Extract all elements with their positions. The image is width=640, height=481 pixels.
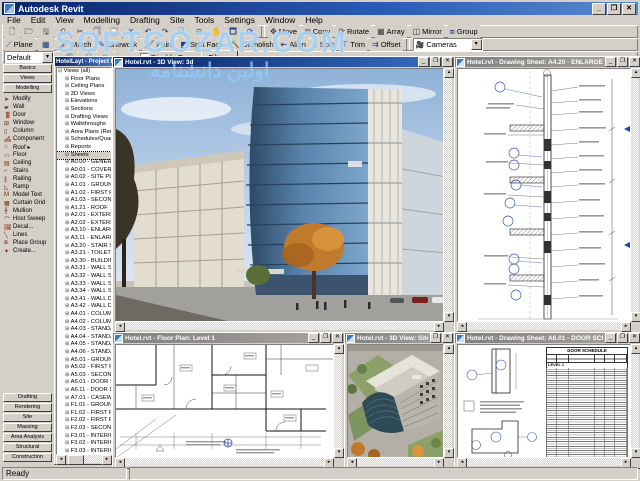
designbar-tab[interactable]: Structural [3,443,52,452]
tree-node-sheet[interactable]: A3.21 - TOILET PLA [57,250,111,258]
status-bar: Ready [2,467,638,480]
label: Array [387,27,405,36]
rotate-button[interactable]: ⟳Rotate [336,25,371,38]
app-icon [4,3,15,14]
tree-node[interactable]: Sections [57,106,111,114]
project-browser-title: HotelLayt - Project b... [56,59,113,65]
scroll-up-icon[interactable]: ▴ [444,68,454,78]
column-icon: ▯ [4,128,11,135]
window-titlebar[interactable]: Hotel.rvt - 3D View: Site ❐✕ [345,333,454,343]
spin-icon[interactable]: ⟳ [242,25,258,38]
maximize-icon[interactable]: ❐ [320,333,331,343]
component-icon: 🛋 [4,136,11,143]
plan-canvas[interactable] [115,344,334,458]
tree-node-sheet[interactable]: A0.02 - SITE PLAN [57,174,111,182]
scroll-track[interactable] [467,458,621,466]
scroll-track[interactable] [631,354,639,448]
menu-item[interactable]: Settings [219,15,260,25]
lines-icon: ╲ [4,232,11,239]
scroll-thumb[interactable] [68,455,84,465]
close-icon[interactable]: ✕ [332,333,343,343]
label: Rotate [347,27,369,36]
tree-node-sheet[interactable]: A0.01 - COVER SH [57,167,111,175]
label: Mirror [422,27,442,36]
mirror-icon: ◫ [413,27,421,36]
tree-node-sheet[interactable]: A4.01 - COLUMN A [57,311,111,319]
modeltext-tool[interactable]: MModel Text [2,191,53,199]
tree-node-sheet[interactable]: A3.10 - ENLARGE [57,227,111,235]
mirror-button[interactable]: ◫Mirror [411,25,444,38]
window-title: Hotel.rvt - Drawing Sheet: A4.20 - ENLAR… [467,59,603,66]
designbar-tabs-top: BasicsViewsModelling [2,64,53,93]
scroll-down-icon[interactable]: ▾ [444,312,454,322]
status-text: Ready [2,467,127,480]
scroll-track[interactable] [84,455,102,463]
save-icon-icon: 🖫 [43,27,50,36]
chevron-down-icon[interactable]: ▾ [42,52,53,63]
tree-node-sheet[interactable]: A3.33 - WALL SEC [57,281,111,289]
schedule-title: DOOR SCHEDULE [546,347,628,354]
linework-icon: ✎ [98,40,105,49]
scroll-track[interactable] [444,354,452,448]
tree-node-sheet[interactable]: A6.11 - DOOR DET [57,387,111,395]
tree-node-sheet[interactable]: A2.01 - EXTERIOR [57,212,111,220]
tree-view-categories: Floor PlansCeiling Plans3D ViewsElevatio… [57,76,111,137]
trim-button[interactable]: ⊤Trim [339,38,367,51]
schedule-header-cell [615,355,627,362]
close-icon[interactable]: ✕ [442,333,453,343]
standard-toolbar-icons: 🗋🗁🖫⎙✂🗍📋✕↶↷🔍⊖✋🗖⟳ [4,25,258,38]
curtaingrid-icon: ▦ [4,200,11,207]
tree-node-sheet[interactable]: F3.03 - INTERIOR [57,448,111,455]
plane-button[interactable]: ⟋Plane [4,38,35,51]
horizontal-scrollbar[interactable]: ◂ ▸ [115,458,334,466]
tree-node[interactable]: Elevations [57,98,111,106]
window-titlebar[interactable]: Hotel.rvt - Floor Plan: Level 1 _❐✕ [113,333,344,343]
tree-node-sheet[interactable]: A7.01 - CASEWOR [57,395,111,403]
scroll-track[interactable] [334,354,342,448]
minimize-icon[interactable]: _ [308,333,319,343]
paint-icon: 🖌 [144,40,154,49]
designbar-tab[interactable]: Modelling [3,84,52,93]
grid-button[interactable]: ▦ [38,38,54,51]
new-icon[interactable]: 🗋 [4,25,20,38]
schedule-header-cell [605,355,615,362]
toolbar-separator [261,26,265,37]
save-icon[interactable]: 🖫 [38,25,54,38]
scroll-track[interactable] [467,322,621,330]
horizontal-scrollbar[interactable]: ◂ ▸ [457,322,631,330]
paste-icon-icon: 📋 [109,27,119,36]
tree-node-schedules[interactable]: Schedules/Quantiti [57,136,111,144]
sheet-canvas[interactable]: DOOR SCHEDULE LEVEL 1 LEVEL 2 [457,344,631,458]
designbar-tabs-bottom: DraftingRenderingSiteMassingArea Analysi… [2,393,53,463]
minimize-icon[interactable]: _ [592,3,606,15]
vertical-scrollbar[interactable]: ▴ ▾ [444,68,452,322]
app-titlebar[interactable]: Autodesk Revit _ ❐ ✕ [2,2,638,15]
maximize-icon[interactable]: ❐ [617,57,628,67]
floor-plan-drawing [116,345,334,458]
designbar-tab[interactable]: Rendering [3,403,52,412]
label: Door [13,112,26,118]
label: Mullion [13,208,32,214]
minimize-icon[interactable]: _ [605,333,616,343]
tree-node-sheet[interactable]: F3.01 - INTERIOR [57,433,111,441]
vertical-scrollbar[interactable]: ▴ ▾ [631,68,639,322]
match-icon: 🖌 [59,40,69,49]
zoom-out-icon-icon: ⊖ [196,27,203,36]
plane-icon: ⟋ [6,40,12,49]
label: Host Sweep [13,216,45,222]
tree-node-sheet[interactable]: A4.05 - STANDARD [57,341,111,349]
scroll-left-icon[interactable]: ◂ [56,455,66,465]
tree-node[interactable]: 3D Views [57,91,111,99]
tree-node-sheet[interactable]: A3.20 - STAIR SEC [57,243,111,251]
scroll-right-icon[interactable]: ▸ [434,322,444,332]
floor-tool[interactable]: ▭Floor [2,151,53,159]
vertical-scrollbar[interactable]: ▴ ▾ [631,344,639,458]
menu-item[interactable]: Drafting [125,15,165,25]
minimize-icon[interactable]: _ [418,57,429,67]
ceiling-tool[interactable]: ▤Ceiling [2,159,53,167]
designbar-tab[interactable]: Area Analysis [3,433,52,442]
paste-icon[interactable]: 📋 [106,25,122,38]
scroll-up-icon[interactable]: ▴ [444,344,454,354]
group-button[interactable]: ⧈Group [448,25,480,38]
curtaingrid-tool[interactable]: ▦Curtain Grid [2,199,53,207]
rotate-icon: ⟳ [338,27,345,36]
label: Lines [13,232,27,238]
tree-node-sheet[interactable]: A3.41 - WALL DET [57,296,111,304]
menu-item[interactable]: View [50,15,78,25]
label: Group [457,27,478,36]
scroll-down-icon[interactable]: ▾ [334,448,344,458]
designbar-tab[interactable]: Drafting [3,393,52,402]
cut-icon[interactable]: ✂ [72,25,88,38]
window-3d-aerial: Hotel.rvt - 3D View: Site ❐✕ [344,332,455,469]
demolish-icon: 🔨 [230,40,240,49]
mullion-icon: ╫ [4,208,11,214]
3d-rendering [116,69,444,322]
ramp-icon: ◺ [4,184,11,191]
floor-icon: ▭ [4,152,11,159]
label: Stairs [13,168,28,174]
linework-button[interactable]: ✎Linework [96,38,139,51]
3d-view-canvas[interactable] [115,68,444,322]
label: Offset [381,40,401,49]
window-title: Hotel.rvt - Drawing Sheet: A6.01 - DOOR … [467,335,603,342]
splitface-icon: ◩ [180,40,188,49]
close-icon[interactable]: ✕ [629,57,640,67]
match-button[interactable]: 🖌Match [57,38,94,51]
split-icon: ⑃ [313,40,318,49]
menu-bar: FileEditViewModellingDraftingSiteToolsSe… [2,15,638,25]
align-button[interactable]: ⇤Align [279,38,308,51]
stairs-icon: ⌐ [4,168,11,174]
options-combo[interactable]: Default ▾ [4,51,54,64]
label: Demolish [242,40,273,49]
grid-icon: ▦ [42,40,50,49]
railing-icon: ∥ [4,176,11,183]
label: Wall [13,104,24,110]
label: Create... [13,248,36,254]
window-3d-view: Hotel.rvt - 3D View: 3d _❐✕ [112,56,455,333]
tree-node-views[interactable]: Views (all) [57,68,111,76]
copy-button[interactable]: ⧉Copy [303,25,332,38]
standard-toolbar-buttons: ✥Move⧉Copy⟳Rotate▦Array◫Mirror⧈Group [268,25,480,38]
tree-node-sheet[interactable]: A3.42 - WALL DET [57,303,111,311]
schedule-rows-level1 [546,368,628,459]
label: Copy [313,27,331,36]
horizontal-scrollbar[interactable]: ◂ ▸ [347,458,444,466]
open-icon-icon: 🗁 [24,27,34,36]
designbar-tab[interactable]: Massing [3,423,52,432]
tree-node-sheet[interactable]: F1.02 - FIRST FLO [57,410,111,418]
wall-tool[interactable]: ▰Wall [2,103,53,111]
tree-node[interactable]: Ceiling Plans [57,83,111,91]
sheet-icon [456,58,465,67]
scroll-up-icon[interactable]: ▴ [631,68,640,78]
undo-icon[interactable]: ↶ [140,25,156,38]
window-title: Hotel.rvt - 3D View: Site [357,335,428,342]
menu-item[interactable]: File [2,15,26,25]
tree-node[interactable]: Walkthroughs [57,121,111,129]
scroll-track[interactable] [357,458,434,466]
label: Split [320,40,335,49]
designbar-tools: ➤Modify▰Wall🚪Door⊞Window▯Column🛋Componen… [2,95,53,255]
scroll-track[interactable] [125,458,324,466]
tree-node-sheet[interactable]: F1.01 - GROUND F [57,402,111,410]
menu-item[interactable]: Site [165,15,190,25]
tree-node-sheets[interactable]: Sheets [57,152,111,160]
window-titlebar[interactable]: Hotel.rvt - Drawing Sheet: A4.20 - ENLAR… [455,57,640,67]
print-icon[interactable]: ⎙ [55,25,71,38]
label: Roof ▸ [13,144,30,151]
label: Ramp [13,184,29,190]
copy-clip-icon[interactable]: 🗍 [89,25,105,38]
scroll-up-icon[interactable]: ▴ [334,344,344,354]
menu-item[interactable]: Help [300,15,327,25]
tree-node[interactable]: Area Plans (Ren [57,129,111,137]
door-detail-drawings [458,345,544,458]
tree-node-reports[interactable]: Reports [57,144,111,152]
window-sheet-a601: Hotel.rvt - Drawing Sheet: A6.01 - DOOR … [454,332,640,469]
status-panel [129,467,638,480]
tree-node[interactable]: Drafting Views [57,114,111,122]
tree-node-sheet[interactable]: A4.04 - STANDARD [57,334,111,342]
label: Model Text [13,192,42,198]
maximize-icon[interactable]: ❐ [617,333,628,343]
designbar-tab[interactable]: Site [3,413,52,422]
cut-icon-icon: ✂ [77,27,84,36]
tree-node-sheet[interactable]: A1.03 - SECOND [57,197,111,205]
tree-node-sheet[interactable]: A0.00 - GENERAL [57,159,111,167]
roof-icon: ⌂ [4,144,11,150]
horizontal-scrollbar[interactable]: ◂ ▸ [457,458,631,466]
label: Curtain Grid [13,200,45,206]
tree-node-sheet[interactable]: A3.32 - WALL SEC [57,273,111,281]
scroll-right-icon[interactable]: ▸ [102,455,112,465]
window-titlebar[interactable]: Hotel.rvt - Drawing Sheet: A6.01 - DOOR … [455,333,640,343]
vertical-scrollbar[interactable]: ▴ ▾ [444,344,452,458]
revit-application-window: Autodesk Revit _ ❐ ✕ FileEditViewModelli… [0,0,640,481]
hostsweep-tool[interactable]: ⌒Host Sweep [2,215,53,223]
scroll-track[interactable] [444,78,452,312]
tree-node-sheet[interactable]: A3.34 - WALL SEC [57,288,111,296]
tree-node-sheet[interactable]: A6.01 - DOOR SCH [57,379,111,387]
camera-combo[interactable]: 🎥 Cameras ▾ [413,38,483,51]
window-title: Hotel.rvt - 3D View: 3d [125,59,194,66]
split-button[interactable]: ⑃Split [311,38,336,51]
chevron-down-icon[interactable]: ▾ [471,39,482,50]
tree-node[interactable]: Floor Plans [57,76,111,84]
pan-icon[interactable]: ✋ [208,25,224,38]
menu-item[interactable]: Modelling [79,15,125,25]
scroll-down-icon[interactable]: ▾ [631,312,640,322]
tree-node-sheet[interactable]: F2.03 - SECOND F [57,425,111,433]
standard-toolbar: 🗋🗁🖫⎙✂🗍📋✕↶↷🔍⊖✋🗖⟳ ✥Move⧉Copy⟳Rotate▦Array◫… [2,25,638,38]
tree-node-sheet[interactable]: A5.01 - GROUND F [57,357,111,365]
array-button[interactable]: ▦Array [375,25,406,38]
schedule-header-cell [547,355,557,362]
wall-section-drawing [458,69,631,322]
maximize-icon[interactable]: ❐ [607,3,621,15]
move-icon: ✥ [270,27,277,36]
zoom-in-icon[interactable]: 🔍 [174,25,190,38]
door-tool[interactable]: 🚪Door [2,111,53,119]
scroll-left-icon[interactable]: ◂ [457,322,467,332]
paint-button[interactable]: 🖌Paint [142,38,175,51]
tree-node-sheet[interactable]: A4.02 - COLUMNS [57,319,111,327]
sheet-canvas[interactable] [457,68,631,322]
window-floor-plan: Hotel.rvt - Floor Plan: Level 1 _❐✕ [112,332,345,469]
tree-node-sheet[interactable]: A1.01 - GROUND [57,182,111,190]
placegroup-tool[interactable]: ⧈Place Group [2,239,53,247]
label: Split Face [190,40,223,49]
scroll-track[interactable] [125,322,434,330]
trim-icon: ⊤ [341,40,348,49]
railing-tool[interactable]: ∥Railing [2,175,53,183]
ramp-tool[interactable]: ◺Ramp [2,183,53,191]
tree-node-sheet[interactable]: A5.03 - SECOND F [57,372,111,380]
menu-item[interactable]: Edit [26,15,51,25]
dynamic-view-icon[interactable]: 🗖 [225,25,241,38]
tree-node-sheet[interactable]: A3.11 - ENLARGE [57,235,111,243]
scroll-track[interactable] [631,78,639,312]
browser-horizontal-scrollbar[interactable]: ◂ ▸ [56,455,112,463]
minimize-icon[interactable]: _ [605,57,616,67]
door-icon: 🚪 [4,112,11,119]
label: Component [13,136,44,142]
toolbar-separator [406,39,410,50]
zoom-out-icon[interactable]: ⊖ [191,25,207,38]
scroll-down-icon[interactable]: ▾ [444,448,454,458]
decal-tool[interactable]: 🖼Decal... [2,223,53,231]
copy-clip-icon-icon: 🗍 [93,27,101,36]
designbar-tab[interactable]: Construction [3,453,52,462]
scroll-down-icon[interactable]: ▾ [631,448,640,458]
label: Place Group [13,240,46,246]
tree-node-sheet[interactable]: A4.03 - STANDARD [57,326,111,334]
window-title: Hotel.rvt - Floor Plan: Level 1 [125,335,215,342]
vertical-scrollbar[interactable]: ▴ ▾ [334,344,342,458]
group-icon: ⧈ [450,27,455,36]
tree-node-sheet[interactable]: A3.30 - BUILDING [57,258,111,266]
redo-icon[interactable]: ↷ [157,25,173,38]
close-icon[interactable]: ✕ [442,57,453,67]
print-icon-icon: ⎙ [60,27,66,36]
move-button[interactable]: ✥Move [268,25,299,38]
camera-icon: 🎥 [416,41,425,49]
tree-node-sheet[interactable]: F3.02 - INTERIOR [57,440,111,448]
label: Railing [13,176,31,182]
scroll-up-icon[interactable]: ▴ [631,344,640,354]
horizontal-scrollbar[interactable]: ◂ ▸ [115,322,444,330]
new-icon-icon: 🗋 [9,27,15,36]
dynamic-view-icon-icon: 🗖 [229,27,237,36]
project-browser-titlebar[interactable]: HotelLayt - Project b... ✕ [55,57,113,66]
component-tool[interactable]: 🛋Component [2,135,53,143]
roof-tool[interactable]: ⌂Roof ▸ [2,143,53,151]
open-icon[interactable]: 🗁 [21,25,37,38]
tree-node-sheet[interactable]: A1.21 - ROOF [57,205,111,213]
schedule-header-cell [557,355,569,362]
designbar-tab[interactable]: Views [3,74,52,83]
tree-node-sheet[interactable]: F2.02 - FIRST FLO [57,417,111,425]
align-icon: ⇤ [281,40,288,49]
menu-item[interactable]: Tools [189,15,219,25]
tree-node-sheet[interactable]: A1.02 - FIRST FLO [57,190,111,198]
label: Linework [107,40,137,49]
stairs-tool[interactable]: ⌐Stairs [2,167,53,175]
scroll-left-icon[interactable]: ◂ [115,322,125,332]
offset-button[interactable]: ⇉Offset [370,38,403,51]
menu-item[interactable]: Window [260,15,300,25]
tree-node-sheet[interactable]: A4.06 - STANDARD [57,349,111,357]
label: Floor [13,152,27,158]
close-icon[interactable]: ✕ [622,3,636,15]
maximize-icon[interactable]: ❐ [430,57,441,67]
maximize-icon[interactable]: ❐ [430,333,441,343]
label: Window [13,120,34,126]
aerial-rendering [348,345,444,458]
designbar-tab[interactable]: Basics [3,64,52,73]
redo-icon-icon: ↷ [162,27,169,36]
window-icon: ⊞ [4,120,11,127]
offset-icon: ⇉ [372,40,379,49]
label: Plane [14,40,33,49]
label: Trim [350,40,365,49]
modify-tool[interactable]: ➤Modify [2,95,53,103]
column-tool[interactable]: ▯Column [2,127,53,135]
delete-icon[interactable]: ✕ [123,25,139,38]
scroll-right-icon[interactable]: ▸ [621,322,631,332]
tree-node-sheet[interactable]: A2.02 - EXTERIOR [57,220,111,228]
aerial-canvas[interactable] [347,344,444,458]
camera-combo-value: Cameras [426,40,456,49]
close-icon[interactable]: ✕ [629,333,640,343]
window-titlebar[interactable]: Hotel.rvt - 3D View: 3d _❐✕ [113,57,454,67]
mullion-tool[interactable]: ╫Mullion [2,207,53,215]
tree-node-sheet[interactable]: A5.02 - FIRST FLO [57,364,111,372]
tree-sheets: A0.00 - GENERALA0.01 - COVER SHA0.02 - S… [57,159,111,455]
lines-tool[interactable]: ╲Lines [2,231,53,239]
sheet-icon [456,334,465,343]
copy-icon: ⧉ [305,27,311,36]
create-tool[interactable]: ✦Create... [2,247,53,255]
tree-node-sheet[interactable]: A3.31 - WALL SEC [57,265,111,273]
window-tool[interactable]: ⊞Window [2,119,53,127]
